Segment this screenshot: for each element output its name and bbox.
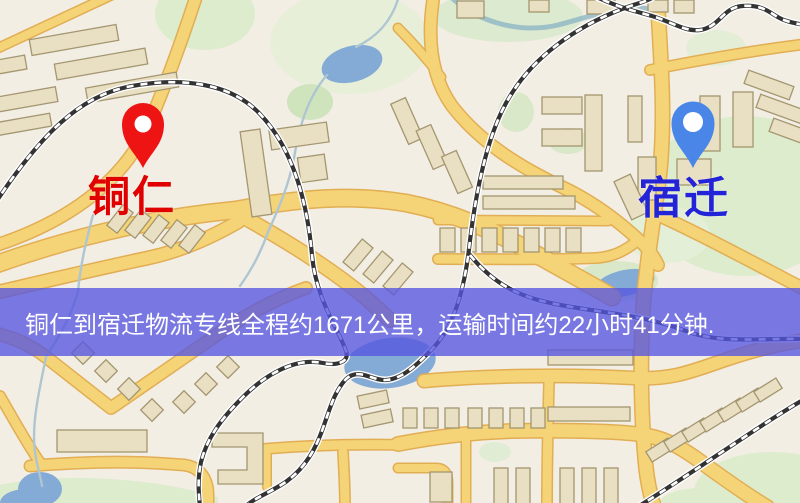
map-canvas[interactable] [0, 0, 800, 503]
destination-city-label: 宿迁 [638, 177, 730, 221]
route-info-text: 铜仁到宿迁物流专线全程约1671公里，运输时间约22小时41分钟. [0, 305, 714, 340]
origin-city-label: 铜仁 [88, 176, 176, 218]
route-info-banner: 铜仁到宿迁物流专线全程约1671公里，运输时间约22小时41分钟. [0, 288, 800, 356]
map-screenshot: 铜仁 宿迁 铜仁到宿迁物流专线全程约1671公里，运输时间约22小时41分钟. [0, 0, 800, 503]
